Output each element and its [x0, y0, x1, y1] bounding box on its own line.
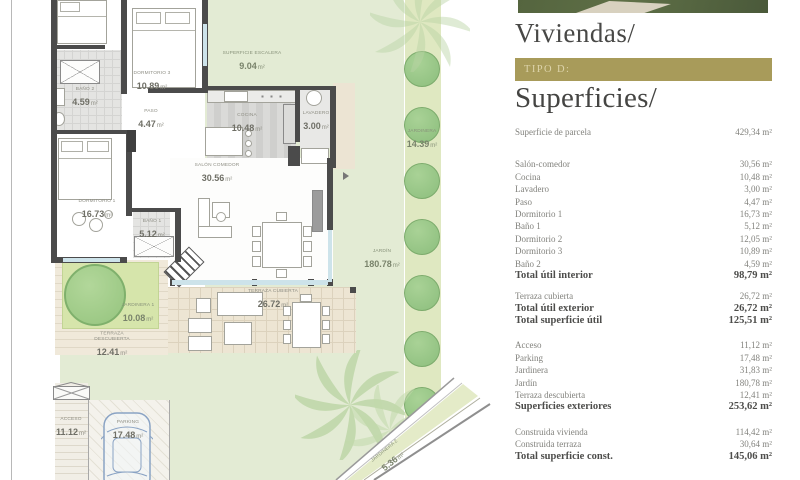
area-label-jardinera-strip: JARDINERA 14.39m² [404, 128, 440, 151]
table-row: Dormitorio 212,05 m² [515, 233, 772, 245]
room-label-dormitorio3: DORMITORIO 3 10.89m² [129, 70, 175, 93]
floor-plan: DORMITORIO 3 10.89m² BAÑO 2 4.59m² PASO … [0, 0, 497, 480]
outdoor-coffee-table [224, 322, 252, 345]
chair [252, 226, 261, 237]
table-row: Lavadero3,00 m² [515, 183, 772, 195]
table-row: Parking17,48 m² [515, 352, 772, 364]
aerial-photo [518, 0, 768, 13]
tv-unit [312, 190, 323, 232]
table-row: Paso4,47 m² [515, 196, 772, 208]
tree-icon [404, 163, 440, 199]
terrace-post [350, 287, 356, 293]
wall [327, 158, 333, 230]
tree-icon [404, 275, 440, 311]
panel-title: Viviendas/ [515, 18, 635, 49]
table-row: Cocina10,48 m² [515, 171, 772, 183]
chair [283, 320, 291, 330]
chair [276, 269, 287, 278]
area-label-parking: PARKING 17.48m² [113, 419, 144, 442]
table-row: Dormitorio 310,89 m² [515, 245, 772, 257]
chair [252, 241, 261, 252]
dining-table [262, 222, 302, 268]
table-row: Superficie de parcela 429,34 m² [515, 126, 772, 138]
room-label-paso: PASO 4.47m² [138, 108, 164, 131]
room-label-salon: SALÓN COMEDOR 30.56m² [189, 162, 245, 185]
chair [322, 306, 330, 316]
wall [121, 0, 127, 94]
group-exteriores: Acceso11,12 m² Parking17,48 m² Jardinera… [515, 339, 772, 413]
table-row: Construida vivienda114,42 m² [515, 426, 772, 438]
table-row: Construida terraza30,64 m² [515, 438, 772, 450]
side-table [196, 298, 211, 313]
table-row-total: Total útil interior98,79 m² [515, 270, 772, 282]
table-row-total: Total útil exterior26,72 m² [515, 303, 772, 315]
chair [303, 256, 312, 267]
table-row: Jardín180,78 m² [515, 377, 772, 389]
table-row: Baño 24,59 m² [515, 258, 772, 270]
coffee-table [216, 212, 226, 222]
shower [60, 60, 100, 84]
tree-icon [404, 331, 440, 367]
area-label-escalera: SUPERFICIE ESCALERA 9.04m² [215, 50, 289, 73]
chair [283, 334, 291, 344]
chair [322, 334, 330, 344]
room-label-cocina: COCINA 10.48m² [232, 112, 263, 135]
window-glass [63, 258, 120, 262]
wall [126, 208, 180, 212]
wall [175, 208, 181, 262]
table-row: Terraza cubierta26,72 m² [515, 290, 772, 302]
chair [252, 256, 261, 267]
site-boundary [320, 370, 497, 480]
group-exterior-util: Terraza cubierta26,72 m² Total útil exte… [515, 290, 772, 327]
table-row: Acceso11,12 m² [515, 339, 772, 351]
type-badge: TIPO D: [515, 58, 772, 81]
area-label-terraza-descubierta: TERRAZA DESCUBIERTA 12.41m² [85, 330, 139, 360]
spec-panel: Viviendas/ TIPO D: Superficies/ Superfic… [498, 0, 794, 480]
room-label-bano1: BAÑO 1 5.12m² [139, 218, 165, 241]
sofa [198, 226, 232, 238]
window-glass [203, 24, 207, 66]
group-construida: Construida vivienda114,42 m² Construida … [515, 426, 772, 463]
table-row-total: Total superficie útil125,51 m² [515, 315, 772, 327]
room-label-lavadero: LAVADERO 3.00m² [299, 110, 332, 133]
wall [288, 146, 300, 166]
stove-icon [258, 92, 284, 101]
surface-table: Superficie de parcela 429,34 m² Salón-co… [515, 126, 772, 463]
table-row-total: Total superficie const.145,06 m² [515, 451, 772, 463]
table-row: Baño 15,12 m² [515, 220, 772, 232]
chair [276, 212, 287, 221]
panel-subtitle: Superficies/ [515, 82, 657, 115]
chair [303, 226, 312, 237]
stool [245, 150, 252, 157]
window-glass [328, 230, 332, 282]
stool [245, 140, 252, 147]
table-row: Jardinera31,83 m² [515, 364, 772, 376]
chair [322, 320, 330, 330]
kitchen-sink [224, 91, 248, 102]
tree-icon [404, 219, 440, 255]
window-glass [172, 280, 328, 285]
brochure-page: DORMITORIO 3 10.89m² BAÑO 2 4.59m² PASO … [0, 0, 800, 480]
area-label-jardinera1: JARDINERA 1 10.08m² [118, 302, 159, 325]
walkway [333, 83, 355, 169]
area-label-acceso: ACCESO 11.12m² [56, 416, 86, 439]
table-row: Salón-comedor30,56 m² [515, 158, 772, 170]
room-label-dormitorio1: DORMITORIO 1 16.73m² [74, 198, 120, 221]
outdoor-armchair [188, 336, 212, 351]
palm-tree-icon [370, 0, 470, 72]
table-row: Terraza descubierta12,41 m² [515, 389, 772, 401]
storage-box [301, 148, 329, 164]
roof-shape [576, 1, 671, 13]
table-row-total: Superficies exteriores253,62 m² [515, 401, 772, 413]
pergola-icon [53, 382, 90, 400]
group-parcela: Superficie de parcela 429,34 m² [515, 126, 772, 138]
table-row: Dormitorio 116,73 m² [515, 208, 772, 220]
path-marker-icon [343, 172, 349, 180]
wall [51, 45, 105, 49]
page-border-left [11, 0, 12, 480]
group-interior: Salón-comedor30,56 m² Cocina10,48 m² Lav… [515, 158, 772, 282]
outdoor-armchair [188, 318, 212, 333]
room-label-bano2: BAÑO 2 4.59m² [72, 86, 98, 109]
washing-machine-icon [306, 90, 322, 106]
wall [206, 86, 336, 90]
area-label-jardin: JARDÍN 180.78m² [364, 248, 400, 271]
area-label-terraza-cubierta: TERRAZA CUBIERTA 26.72m² [242, 288, 304, 311]
chair [303, 241, 312, 252]
wardrobe [127, 130, 136, 152]
wall [51, 130, 127, 134]
